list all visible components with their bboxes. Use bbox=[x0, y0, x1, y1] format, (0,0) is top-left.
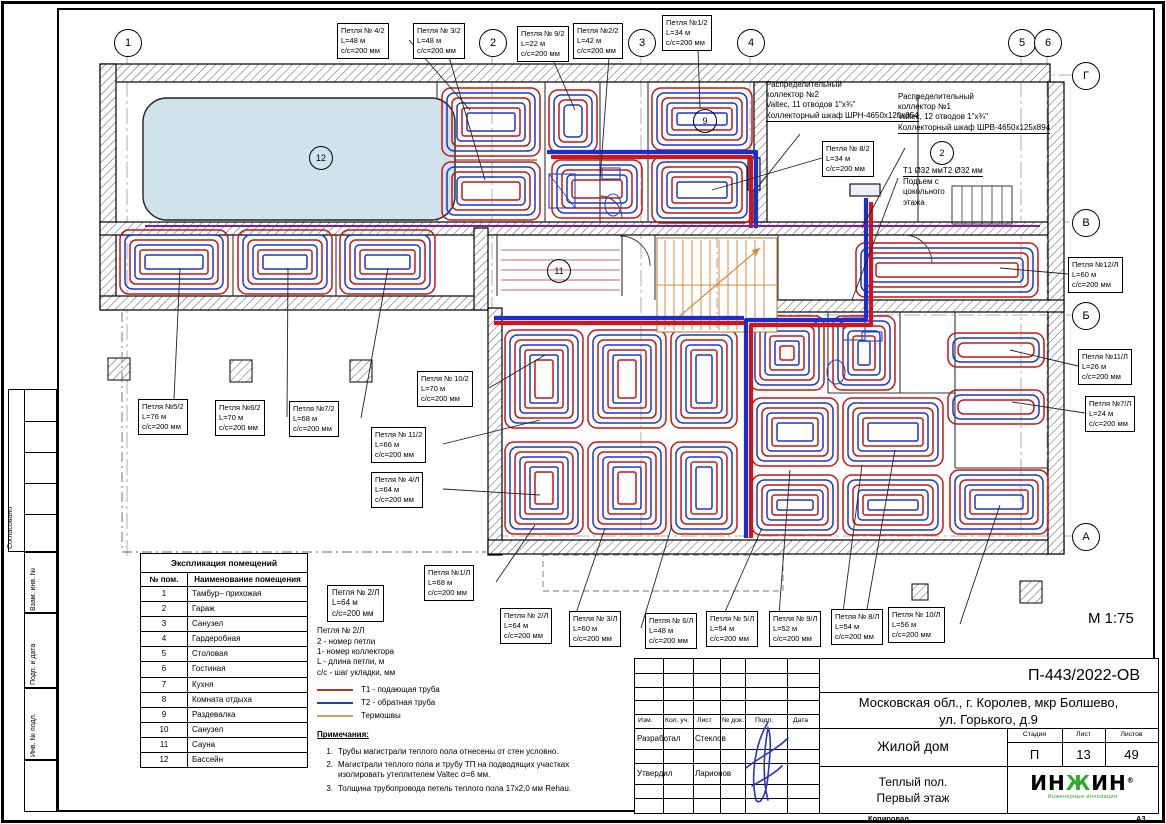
room-schedule-row: 4Гардеробная bbox=[141, 632, 307, 647]
axis-circle-right: Г bbox=[1072, 62, 1100, 90]
room-schedule-row: 10Санузел bbox=[141, 723, 307, 738]
loop-label: Петля №11/ЛL=26 мс/с=200 мм bbox=[1078, 349, 1132, 385]
loop-label: Петля № 5/ЛL=54 мс/с=200 мм bbox=[706, 611, 758, 647]
axis-circle-right: Б bbox=[1072, 302, 1100, 330]
room-schedule-row: 8Комната отдыха bbox=[141, 693, 307, 708]
room-schedule-row: 12Бассейн bbox=[141, 753, 307, 767]
legend-line-item: Термошвы bbox=[317, 711, 622, 721]
loop-label: Петля № 9/ЛL=52 мс/с=200 мм bbox=[769, 611, 821, 647]
room-number-circle: 12 bbox=[309, 146, 333, 170]
room-schedule-row: 1Тамбур– прихожая bbox=[141, 587, 307, 602]
legend-key-line: L - длина петли, м bbox=[317, 657, 622, 667]
legend-line-swatch bbox=[317, 715, 353, 717]
tb-address: Московская обл., г. Королев, мкр Болшево… bbox=[819, 695, 1158, 729]
room-number-circle: 11 bbox=[547, 259, 571, 283]
loop-label: Петля № 8/2L=34 мс/с=200 мм bbox=[822, 141, 874, 177]
legend-line-item: Т2 - обратная труба bbox=[317, 698, 622, 708]
tb-col-list: Лист bbox=[697, 717, 712, 724]
side-box-inv bbox=[24, 688, 57, 760]
loop-label: Петля № 6/ЛL=48 мс/с=200 мм bbox=[645, 613, 697, 649]
room-schedule-table: Экспликация помещений № пом. Наименовани… bbox=[140, 553, 308, 768]
axis-circle-right: В bbox=[1072, 209, 1100, 237]
tb-sheets-value: 49 bbox=[1105, 747, 1158, 762]
legend-key-line: с/с - шаг укладки, мм bbox=[317, 668, 622, 678]
logo-leaf-letter: Ж bbox=[1066, 771, 1091, 795]
loop-label: Петля №7/ЛL=24 мс/с=200 мм bbox=[1085, 396, 1135, 432]
legend-line-swatch bbox=[317, 702, 353, 704]
collector-note: Распределительныйколлектор №1Valtec, 12 … bbox=[898, 92, 1050, 134]
room-schedule-title: Экспликация помещений bbox=[141, 554, 307, 573]
loop-label: Петля № 11/2L=66 мс/с=200 мм bbox=[371, 427, 426, 463]
tb-approved-name: Ларионов bbox=[695, 769, 731, 778]
loop-label: Петля № 8/ЛL=54 мс/с=200 мм bbox=[831, 609, 883, 645]
loop-label: Петля №2/2L=42 мс/с=200 мм bbox=[573, 23, 623, 59]
company-logo: ИНЖИН® Инженерные инновации bbox=[1007, 773, 1158, 800]
axis-circle-top: 2 bbox=[479, 29, 507, 57]
tb-developed-name: Стеклов bbox=[695, 734, 726, 743]
tb-col-izm: Изм. bbox=[638, 717, 653, 724]
legend-sample-box: Петля № 2/Л L=64 м с/с=200 мм bbox=[327, 585, 384, 622]
room-schedule-header: № пом. Наименование помещения bbox=[141, 573, 307, 587]
tb-col-kol: Кол. уч. bbox=[665, 717, 689, 724]
legend-sample-title: Петля № 2/Л bbox=[332, 588, 379, 598]
room-schedule-row: 5Столовая bbox=[141, 647, 307, 662]
room-number-circle: 9 bbox=[693, 109, 717, 133]
side-box-podp bbox=[24, 613, 57, 688]
room-number-circle: 2 bbox=[930, 141, 954, 165]
loop-label: Петля № 10/ЛL=56 мс/с=200 мм bbox=[888, 607, 945, 643]
room-schedule-row: 7Кухня bbox=[141, 678, 307, 693]
tb-sheets-label: Листов bbox=[1105, 731, 1158, 738]
legend-line-item: Т1 - подающая труба bbox=[317, 685, 622, 695]
legend-note: 2.Магистрали теплого пола и трубу ТП на … bbox=[317, 760, 617, 781]
room-schedule-col-num: № пом. bbox=[141, 573, 188, 586]
approval-stamp-box bbox=[8, 389, 57, 552]
legend: Петля № 2/Л L=64 м с/с=200 мм Петля № 2/… bbox=[317, 585, 622, 794]
legend-sample-length: L=64 м bbox=[332, 598, 379, 608]
tb-object-name: Жилой дом bbox=[819, 739, 1007, 754]
side-label-inv: Инв. № подл. bbox=[30, 713, 37, 757]
scale-label: М 1:75 bbox=[1088, 610, 1134, 627]
tb-developed-label: Разработал bbox=[637, 734, 681, 743]
room-schedule-row: 6Гостиная bbox=[141, 662, 307, 677]
room-schedule-row: 3Санузел bbox=[141, 617, 307, 632]
axis-circle-top: 3 bbox=[628, 29, 656, 57]
drawing-sheet: Согласовано Взам. инв. № Подп. и дата Ин… bbox=[0, 0, 1166, 824]
legend-line-swatch bbox=[317, 689, 353, 691]
registered-mark: ® bbox=[1127, 776, 1135, 784]
axis-circle-top: 4 bbox=[737, 29, 765, 57]
axis-circle-top: 5 bbox=[1008, 29, 1036, 57]
side-label-podp: Подп. и дата bbox=[30, 644, 37, 685]
room-schedule-col-name: Наименование помещения bbox=[188, 573, 307, 586]
loop-label: Петля №12/ЛL=60 мс/с=200 мм bbox=[1068, 257, 1123, 293]
copied-label: Копировал bbox=[868, 814, 909, 823]
axis-circle-right: А bbox=[1072, 523, 1100, 551]
logo-text: ИНЖИН® bbox=[1007, 773, 1158, 793]
side-label-vzam: Взам. инв. № bbox=[30, 568, 37, 611]
tb-approved-label: Утвердил bbox=[637, 769, 672, 778]
loop-label: Петля №6/2L=70 мс/с=200 мм bbox=[215, 400, 265, 436]
side-box-vzam bbox=[24, 552, 57, 613]
legend-key-line: 2 - номер петли bbox=[317, 637, 622, 647]
tb-stage-label: Стадия bbox=[1007, 731, 1062, 738]
tb-doc-number: П-443/2022-ОВ bbox=[635, 667, 1140, 685]
loop-label: Петля №1/2L=34 мс/с=200 мм bbox=[662, 15, 712, 51]
signature-scribble bbox=[738, 716, 796, 808]
side-label-soglasovano: Согласовано bbox=[7, 507, 14, 549]
room-schedule-row: 11Сауна bbox=[141, 738, 307, 753]
room-schedule-row: 9Раздевалка bbox=[141, 708, 307, 723]
tb-stage-value: П bbox=[1007, 747, 1062, 762]
legend-note: 1.Трубы магистрали теплого пола отнесены… bbox=[317, 747, 617, 757]
tb-sheet-label: Лист bbox=[1062, 731, 1105, 738]
loop-label: Петля №7/2L=68 мс/с=200 мм bbox=[289, 401, 339, 437]
side-box-empty bbox=[24, 760, 57, 812]
title-block: Изм. Кол. уч. Лист № док. Подп. Дата Раз… bbox=[634, 658, 1159, 814]
collector-note: Распределительныйколлектор №2Valtec, 11 … bbox=[766, 80, 919, 122]
loop-label: Петля № 9/2L=22 мс/с=200 мм bbox=[517, 26, 569, 62]
tb-drawing-title: Теплый пол. Первый этаж bbox=[819, 774, 1007, 806]
room-schedule-row: 2Гараж bbox=[141, 602, 307, 617]
legend-key-line: 1- номер коллектора bbox=[317, 647, 622, 657]
loop-label: Петля № 4/ЛL=64 мс/с=200 мм bbox=[371, 472, 423, 508]
legend-key-title: Петля № 2/Л bbox=[317, 626, 622, 636]
legend-sample-step: с/с=200 мм bbox=[332, 609, 379, 619]
axis-circle-top: 1 bbox=[114, 29, 142, 57]
legend-notes-title: Примечания: bbox=[317, 730, 622, 740]
riser-note: Т1 Ø32 ммТ2 Ø32 ммПодъем сцокольногоэтаж… bbox=[903, 166, 983, 208]
tb-sheet-value: 13 bbox=[1062, 747, 1105, 762]
loop-label: Петля № 3/2L=48 мс/с=200 мм bbox=[413, 23, 465, 59]
loop-label: Петля № 4/2L=48 мс/с=200 мм bbox=[337, 23, 389, 59]
loop-label: Петля № 10/2L=70 мс/с=200 мм bbox=[417, 371, 473, 407]
axis-circle-top: 6 bbox=[1034, 29, 1062, 57]
loop-label: Петля №5/2L=76 мс/с=200 мм bbox=[138, 399, 188, 435]
legend-note: 3.Толщина трубопровода петель теплого по… bbox=[317, 784, 617, 794]
format-label: А3 bbox=[1136, 814, 1146, 823]
